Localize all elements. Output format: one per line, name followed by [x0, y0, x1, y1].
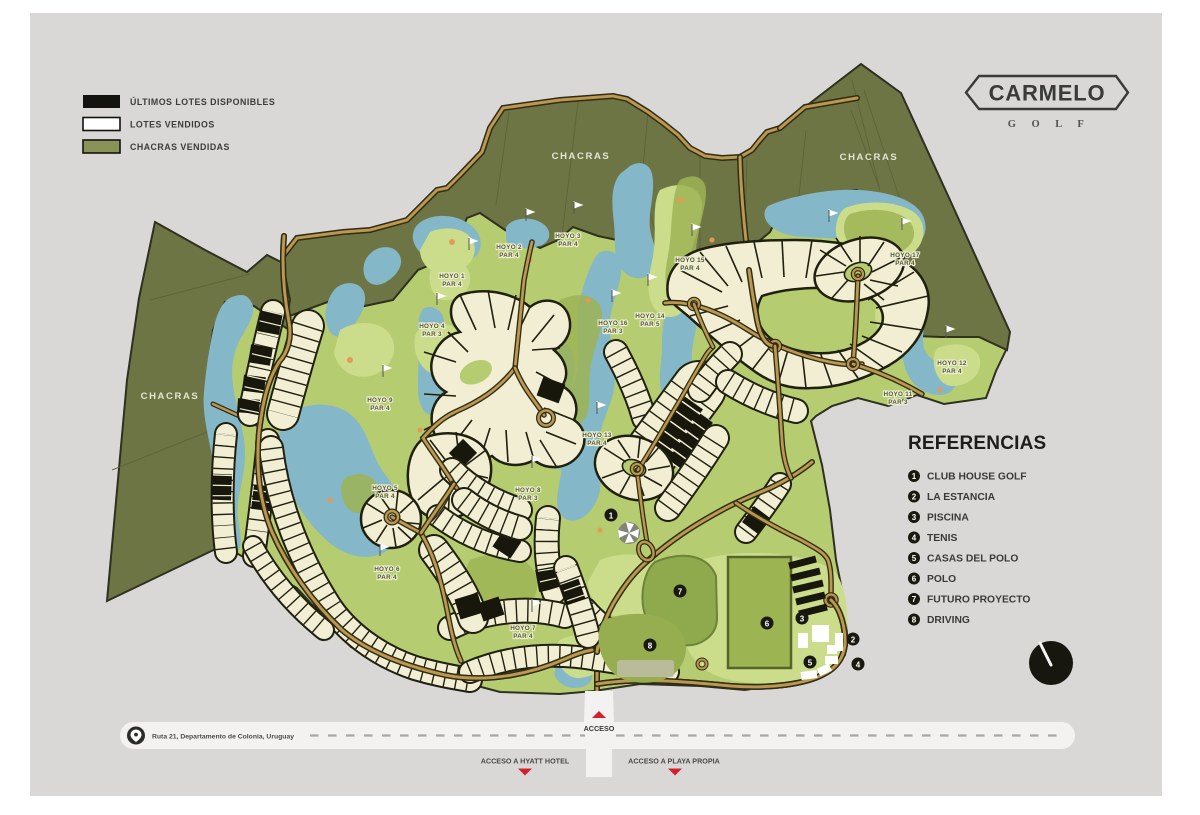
svg-text:POLO: POLO: [927, 574, 956, 585]
svg-text:TENIS: TENIS: [927, 533, 957, 544]
svg-text:4: 4: [912, 534, 917, 543]
svg-text:HOYO 3PAR 4: HOYO 3PAR 4: [555, 233, 581, 248]
svg-text:3: 3: [800, 615, 805, 624]
svg-text:1: 1: [912, 472, 917, 481]
svg-text:CHACRAS: CHACRAS: [552, 151, 611, 162]
svg-text:HOYO 8PAR 3: HOYO 8PAR 3: [515, 487, 541, 502]
svg-text:8: 8: [648, 642, 653, 651]
svg-text:FUTURO PROYECTO: FUTURO PROYECTO: [927, 595, 1030, 606]
svg-text:CHACRAS: CHACRAS: [840, 152, 899, 163]
svg-text:5: 5: [808, 659, 813, 668]
svg-text:HOYO 1PAR 4: HOYO 1PAR 4: [439, 273, 465, 288]
svg-text:4: 4: [856, 661, 861, 670]
svg-text:HOYO 2PAR 4: HOYO 2PAR 4: [496, 244, 522, 259]
svg-text:CLUB HOUSE GOLF: CLUB HOUSE GOLF: [927, 472, 1027, 483]
svg-text:LA ESTANCIA: LA ESTANCIA: [927, 492, 996, 503]
svg-text:5: 5: [912, 554, 917, 563]
svg-text:2: 2: [912, 493, 917, 502]
svg-text:Ruta 21, Departamento de Colon: Ruta 21, Departamento de Colonia, Urugua…: [152, 734, 294, 741]
svg-text:ACCESO A HYATT HOTEL: ACCESO A HYATT HOTEL: [481, 757, 570, 766]
svg-text:2: 2: [851, 636, 856, 645]
svg-text:HOYO 7PAR 4: HOYO 7PAR 4: [510, 625, 536, 640]
svg-text:1: 1: [609, 512, 614, 521]
svg-text:7: 7: [912, 595, 917, 604]
svg-text:ÚLTIMOS LOTES DISPONIBLES: ÚLTIMOS LOTES DISPONIBLES: [130, 96, 275, 107]
svg-text:PISCINA: PISCINA: [927, 513, 969, 524]
svg-text:LOTES VENDIDOS: LOTES VENDIDOS: [130, 120, 215, 130]
svg-text:8: 8: [912, 616, 917, 625]
svg-text:HOYO 6PAR 4: HOYO 6PAR 4: [374, 566, 400, 581]
svg-text:HOYO 5PAR 4: HOYO 5PAR 4: [372, 485, 398, 500]
svg-text:CHACRAS: CHACRAS: [141, 391, 200, 402]
svg-text:7: 7: [678, 588, 683, 597]
svg-text:ACCESO: ACCESO: [584, 724, 615, 733]
svg-text:6: 6: [765, 620, 770, 629]
svg-text:CHACRAS VENDIDAS: CHACRAS VENDIDAS: [130, 142, 230, 152]
svg-text:REFERENCIAS: REFERENCIAS: [908, 433, 1046, 454]
svg-text:CARMELO: CARMELO: [989, 81, 1106, 106]
svg-text:DRIVING: DRIVING: [927, 615, 970, 626]
svg-text:6: 6: [912, 575, 917, 584]
svg-text:HOYO 9PAR 4: HOYO 9PAR 4: [367, 397, 393, 412]
svg-text:ACCESO A PLAYA PROPIA: ACCESO A PLAYA PROPIA: [628, 757, 720, 766]
svg-text:CASAS DEL POLO: CASAS DEL POLO: [927, 554, 1018, 565]
svg-text:3: 3: [912, 513, 917, 522]
svg-text:HOYO 4PAR 3: HOYO 4PAR 3: [419, 323, 445, 338]
svg-text:G O L F: G O L F: [1008, 119, 1091, 130]
